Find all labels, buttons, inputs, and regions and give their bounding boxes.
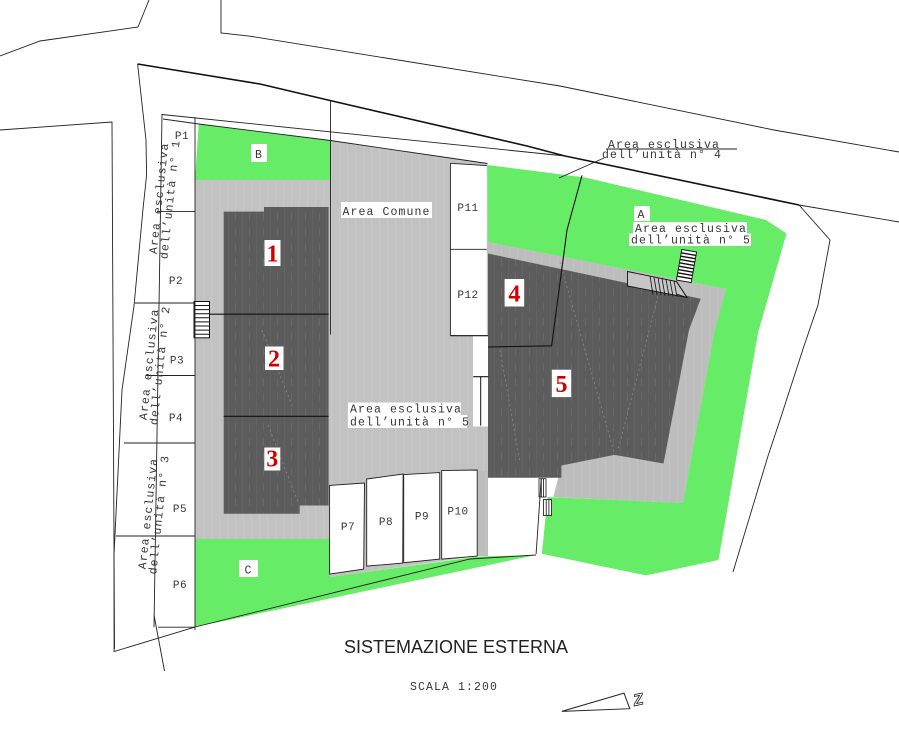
svg-text:Area Comune: Area Comune (342, 206, 430, 219)
svg-text:P9: P9 (415, 512, 429, 524)
svg-text:C: C (244, 565, 252, 578)
svg-text:Z: Z (631, 691, 646, 710)
svg-text:SCALA 1:200: SCALA 1:200 (410, 681, 498, 694)
svg-text:P3: P3 (170, 356, 184, 368)
svg-text:B: B (255, 149, 263, 162)
svg-text:dell’unità n° 4: dell’unità n° 4 (602, 149, 722, 162)
svg-text:P10: P10 (447, 507, 468, 519)
svg-text:P6: P6 (173, 580, 187, 592)
svg-text:5: 5 (556, 372, 568, 398)
svg-text:P8: P8 (379, 517, 393, 529)
svg-text:A: A (637, 209, 645, 222)
svg-text:3: 3 (266, 447, 278, 473)
svg-text:SISTEMAZIONE ESTERNA: SISTEMAZIONE ESTERNA (344, 637, 568, 657)
svg-text:Area esclusiva: Area esclusiva (350, 404, 462, 417)
svg-text:4: 4 (508, 282, 520, 308)
svg-text:P7: P7 (341, 522, 355, 534)
svg-text:P2: P2 (169, 276, 183, 288)
svg-text:P11: P11 (457, 203, 478, 215)
svg-text:2: 2 (268, 347, 280, 373)
svg-text:dell’unità n° 5: dell’unità n° 5 (631, 235, 751, 248)
svg-text:P5: P5 (173, 504, 187, 516)
svg-text:P12: P12 (457, 290, 478, 302)
svg-text:dell’unità n° 5: dell’unità n° 5 (350, 417, 470, 430)
svg-text:1: 1 (267, 242, 279, 268)
svg-text:P4: P4 (169, 413, 183, 425)
